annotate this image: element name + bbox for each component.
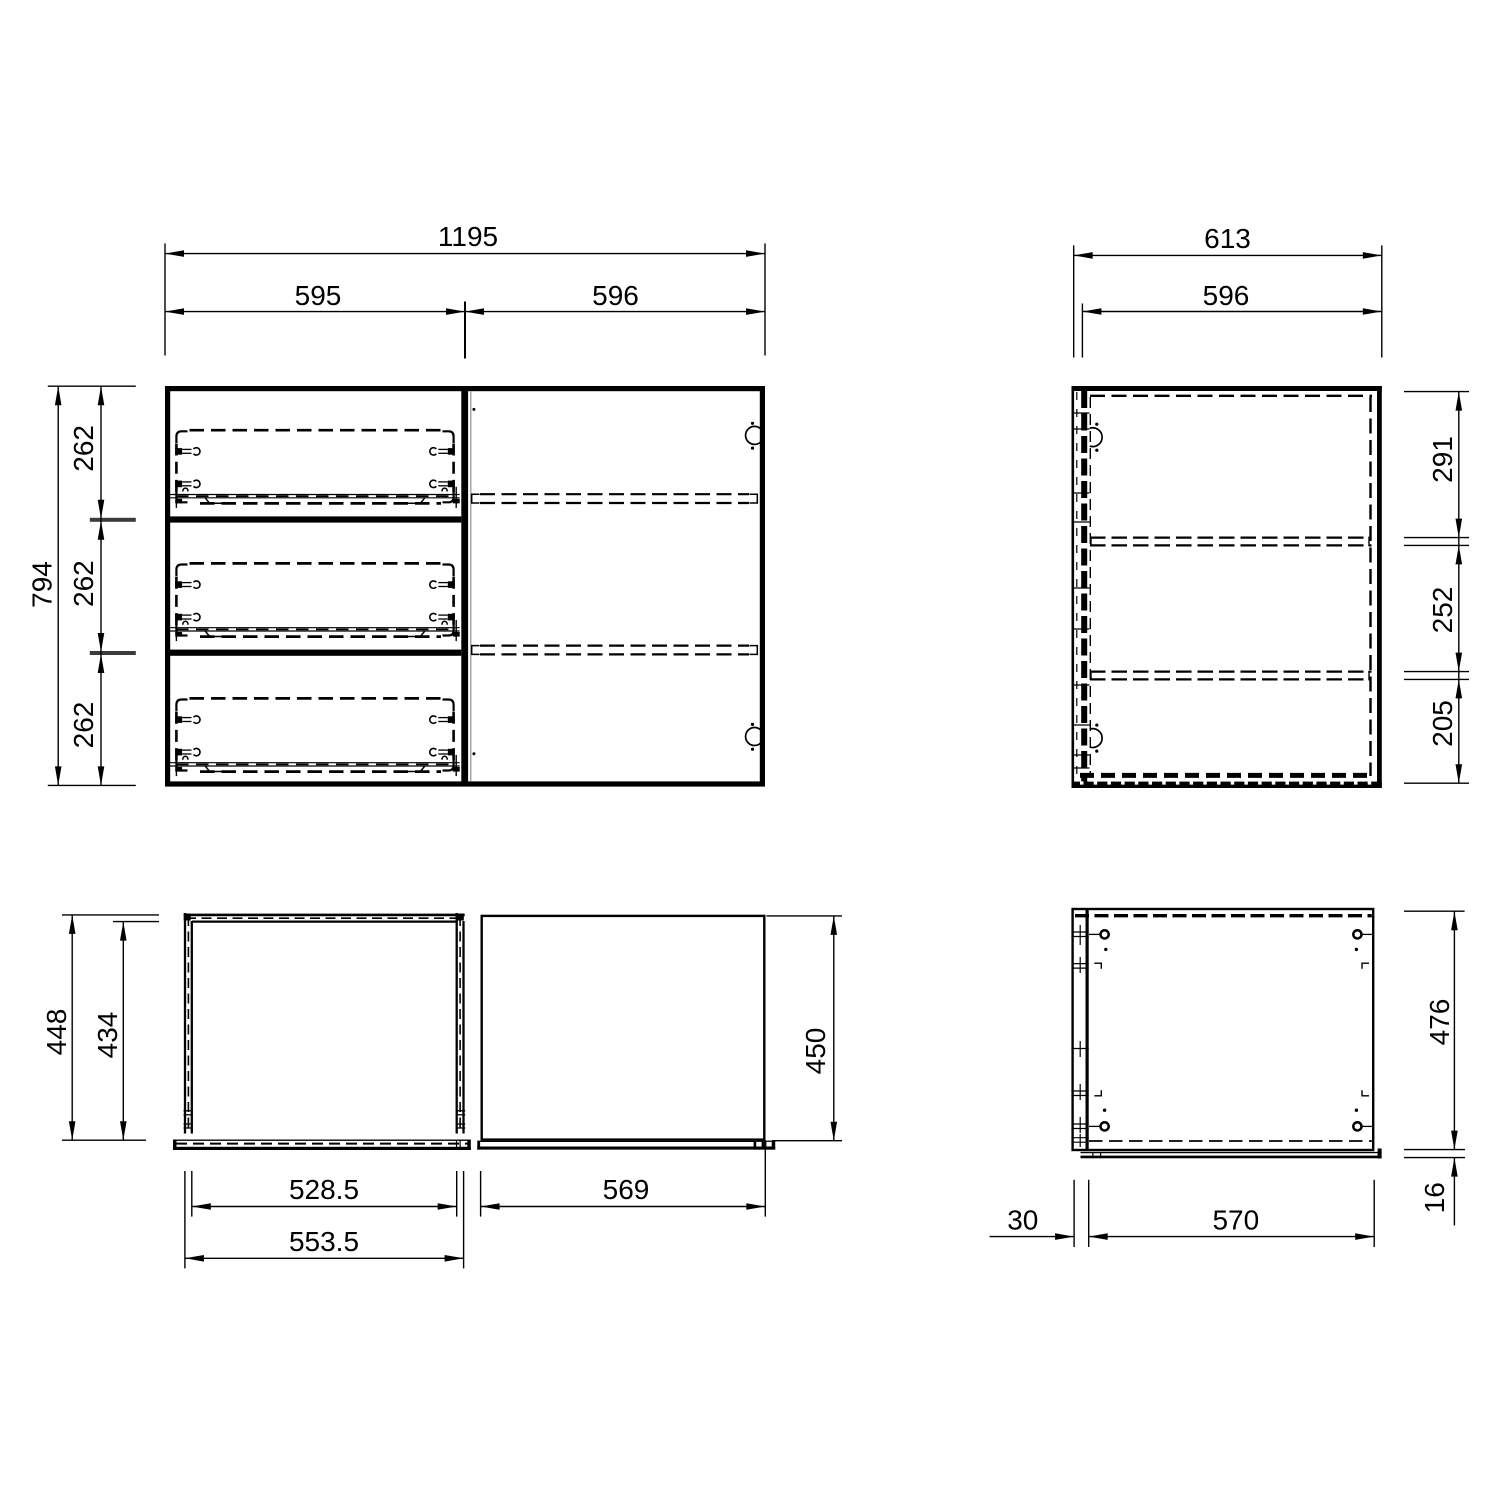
svg-text:570: 570 [1212,1205,1259,1236]
svg-text:252: 252 [1427,587,1458,634]
svg-text:16: 16 [1419,1182,1450,1213]
svg-text:613: 613 [1204,223,1251,254]
svg-text:262: 262 [68,702,99,749]
svg-text:30: 30 [1007,1205,1038,1236]
svg-text:291: 291 [1427,436,1458,483]
svg-text:450: 450 [800,1028,831,1075]
svg-text:794: 794 [26,561,57,608]
svg-text:448: 448 [41,1009,72,1056]
svg-text:528.5: 528.5 [289,1174,359,1205]
svg-text:476: 476 [1424,999,1455,1046]
svg-text:262: 262 [68,560,99,607]
svg-text:569: 569 [603,1174,650,1205]
svg-text:262: 262 [68,425,99,472]
svg-text:596: 596 [1203,280,1250,311]
svg-text:434: 434 [92,1012,123,1059]
svg-text:595: 595 [295,280,342,311]
svg-text:1195: 1195 [438,221,498,252]
svg-text:205: 205 [1427,700,1458,747]
svg-text:596: 596 [592,280,639,311]
svg-text:553.5: 553.5 [289,1226,359,1257]
